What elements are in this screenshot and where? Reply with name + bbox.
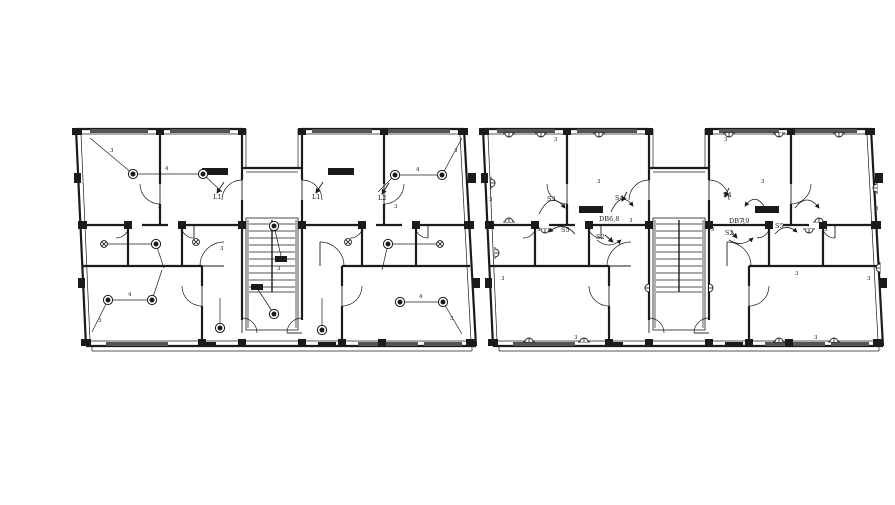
- column-block: [238, 339, 246, 346]
- exhaust-fan-icon: [101, 241, 108, 248]
- light-center: [272, 312, 277, 317]
- column-block: [645, 339, 653, 346]
- column-block: [72, 128, 82, 135]
- column-block: [156, 128, 164, 135]
- door-swing-arc: [649, 318, 664, 333]
- column-block: [78, 221, 87, 229]
- ceiling-light-icon: [147, 295, 156, 304]
- wire-size-label: 3: [220, 246, 224, 252]
- door-swing-arc: [384, 184, 404, 204]
- column-block: [466, 339, 476, 346]
- column-block: [81, 339, 91, 346]
- column-block: [298, 128, 306, 135]
- annotation-label: L2: [378, 194, 386, 202]
- column-block: [464, 221, 474, 229]
- annotation-label: S4: [723, 191, 732, 199]
- light-center: [218, 326, 223, 331]
- door-swing-arc: [694, 318, 709, 333]
- socket-icon: [491, 177, 495, 189]
- ceiling-light-icon: [103, 295, 112, 304]
- ceiling-light-icon: [438, 297, 447, 306]
- socket-icon: [833, 133, 845, 137]
- power-layout-plan: S3S4DB6,8S5S2S4DB7,9S2S53333333333333333: [479, 128, 887, 351]
- light-center: [201, 172, 206, 177]
- ceiling-light-icon: [198, 169, 207, 178]
- column-block: [705, 128, 713, 135]
- exhaust-fan-icon: [437, 241, 444, 248]
- socket-icon: [503, 133, 515, 137]
- door-swing-arc: [182, 286, 202, 306]
- column-block: [378, 339, 386, 346]
- column-block: [458, 128, 468, 135]
- column-block: [725, 342, 743, 347]
- column-block: [481, 173, 488, 183]
- socket-icon: [495, 247, 499, 259]
- light-center: [441, 300, 446, 305]
- wire-size-label: 3: [629, 218, 633, 224]
- pointer-arrow: [217, 182, 224, 193]
- socket-icon: [645, 282, 649, 294]
- floor-plans-canvas: L1L1L2434343433333S3S4DB6,8S5S2S4DB7,9S2…: [0, 0, 895, 505]
- window-bar: [497, 129, 555, 133]
- column-block: [563, 128, 571, 135]
- wall: [76, 129, 86, 346]
- column-block: [873, 339, 883, 346]
- wire-arc: [795, 200, 819, 208]
- ceiling-light-icon: [269, 221, 278, 230]
- wire-size-label: 3: [574, 335, 578, 341]
- wire-size-label: 3: [824, 227, 828, 233]
- light-center: [272, 224, 277, 229]
- light-center: [440, 173, 445, 178]
- column-block: [579, 206, 603, 213]
- column-block: [198, 342, 216, 347]
- column-block: [585, 221, 593, 229]
- light-center: [106, 298, 111, 303]
- column-block: [412, 221, 420, 229]
- light-center: [386, 242, 391, 247]
- door-swing-arc: [140, 184, 160, 204]
- door-swing-arc: [222, 180, 242, 200]
- socket-icon: [503, 218, 515, 222]
- wire-size-label: 3: [394, 204, 398, 210]
- column-block: [879, 278, 887, 288]
- column-block: [485, 221, 494, 229]
- column-block: [178, 221, 186, 229]
- door-swing-arc: [320, 242, 344, 266]
- wire-size-label: 3: [724, 137, 728, 143]
- column-block: [78, 278, 85, 288]
- socket-icon: [773, 133, 785, 137]
- socket-icon: [813, 218, 825, 222]
- wall-inner-line: [488, 134, 497, 341]
- annotation-label: L1: [213, 193, 221, 201]
- lighting-layout-plan: L1L1L2434343433333: [72, 128, 480, 351]
- wire-size-label: 3: [711, 227, 715, 233]
- socket-icon: [828, 338, 840, 342]
- light-center: [154, 242, 159, 247]
- wire-run: [90, 138, 133, 174]
- pointer-arrow: [605, 235, 613, 242]
- column-block: [380, 128, 388, 135]
- window-bar: [765, 342, 825, 346]
- column-block: [318, 342, 336, 347]
- ceiling-light-icon: [215, 323, 224, 332]
- wire-size-label: 4: [416, 167, 420, 173]
- window-bar: [312, 129, 372, 133]
- socket-icon: [773, 338, 785, 342]
- wire-size-label: 3: [867, 276, 871, 282]
- wire-size-label: 3: [537, 227, 541, 233]
- exhaust-fan-icon: [345, 239, 352, 246]
- door-swing-arc: [342, 286, 362, 306]
- drawing-page: L1L1L2434343433333S3S4DB6,8S5S2S4DB7,9S2…: [0, 0, 895, 505]
- column-block: [871, 221, 881, 229]
- column-block: [488, 339, 498, 346]
- annotation-label: DB6,8: [599, 215, 619, 223]
- annotation-label: S5: [561, 226, 570, 234]
- wire-size-label: 3: [450, 316, 454, 322]
- wall-inner-line: [81, 134, 90, 341]
- annotation-label: DB7,9: [729, 217, 749, 225]
- annotation-label: S3: [547, 195, 556, 203]
- wire-size-label: 3: [554, 137, 558, 143]
- pointer-arrow: [316, 182, 323, 193]
- door-swing-arc: [242, 318, 257, 333]
- window-bar: [424, 342, 462, 346]
- wire-size-label: 3: [761, 179, 765, 185]
- column-block: [338, 339, 346, 346]
- window-bar: [90, 129, 148, 133]
- light-center: [131, 172, 136, 177]
- column-block: [468, 173, 476, 183]
- socket-icon: [539, 229, 551, 233]
- socket-icon: [535, 133, 547, 137]
- window-bar: [358, 342, 418, 346]
- door-swing-arc: [287, 318, 302, 333]
- column-block: [328, 168, 354, 175]
- wire-size-label: 3: [277, 266, 281, 272]
- column-block: [875, 173, 883, 183]
- socket-icon: [803, 229, 815, 233]
- light-center: [398, 300, 403, 305]
- column-block: [298, 339, 306, 346]
- column-block: [745, 339, 753, 346]
- column-block: [298, 221, 306, 229]
- wire-size-label: 4: [165, 166, 169, 172]
- column-block: [485, 278, 492, 288]
- wire-size-label: 3: [741, 218, 745, 224]
- column-block: [787, 128, 795, 135]
- column-block: [238, 128, 246, 135]
- wire-size-label: 3: [98, 318, 102, 324]
- light-center: [150, 298, 155, 303]
- wire-size-label: 3: [814, 335, 818, 341]
- window-bar: [719, 129, 779, 133]
- wire-size-label: 3: [489, 197, 493, 203]
- column-block: [645, 221, 653, 229]
- annotation-label: S5: [775, 222, 784, 230]
- annotation-label: S2: [596, 233, 605, 241]
- annotation-label: L1: [312, 193, 320, 201]
- socket-icon: [593, 133, 605, 137]
- ceiling-light-icon: [128, 169, 137, 178]
- door-swing-arc: [607, 242, 631, 266]
- wire-size-label: 3: [501, 276, 505, 282]
- socket-icon: [578, 338, 590, 342]
- socket-icon: [709, 282, 713, 294]
- wire-size-label: 3: [597, 179, 601, 185]
- wire-size-label: 4: [419, 294, 423, 300]
- column-block: [645, 128, 653, 135]
- ceiling-light-icon: [317, 325, 326, 334]
- column-block: [479, 128, 489, 135]
- wire-size-label: 3: [454, 148, 458, 154]
- column-block: [785, 339, 793, 346]
- ceiling-light-icon: [390, 170, 399, 179]
- staircase: [653, 218, 705, 330]
- door-swing-arc: [589, 286, 609, 306]
- wire-size-label: 3: [158, 204, 162, 210]
- wire-size-label: 3: [875, 206, 879, 212]
- door-swing-arc: [791, 184, 811, 204]
- annotation-label: S4: [615, 194, 624, 202]
- wire-run: [92, 300, 108, 332]
- ceiling-light-icon: [269, 309, 278, 318]
- window-bar: [793, 129, 857, 133]
- wire-run: [442, 138, 462, 175]
- column-block: [238, 221, 246, 229]
- wire-size-label: 4: [128, 292, 132, 298]
- annotation-label: S2: [725, 229, 734, 237]
- window-bar: [386, 129, 450, 133]
- window-bar: [577, 129, 637, 133]
- column-block: [472, 278, 480, 288]
- window-bar: [831, 342, 869, 346]
- light-center: [393, 173, 398, 178]
- column-block: [865, 128, 875, 135]
- wire-size-label: 3: [795, 271, 799, 277]
- window-bar: [106, 342, 168, 346]
- window-bar: [170, 129, 230, 133]
- column-block: [74, 173, 81, 183]
- ceiling-light-icon: [151, 239, 160, 248]
- door-swing-arc: [629, 180, 649, 200]
- column-block: [705, 339, 713, 346]
- ceiling-light-icon: [395, 297, 404, 306]
- wall: [483, 129, 493, 346]
- socket-icon: [523, 338, 535, 342]
- ceiling-light-icon: [437, 170, 446, 179]
- wire-size-label: 3: [110, 148, 114, 154]
- light-center: [320, 328, 325, 333]
- window-bar: [513, 342, 575, 346]
- door-swing-arc: [727, 242, 751, 266]
- ceiling-light-icon: [383, 239, 392, 248]
- column-block: [605, 342, 623, 347]
- door-swing-arc: [749, 286, 769, 306]
- exhaust-fan-icon: [193, 239, 200, 246]
